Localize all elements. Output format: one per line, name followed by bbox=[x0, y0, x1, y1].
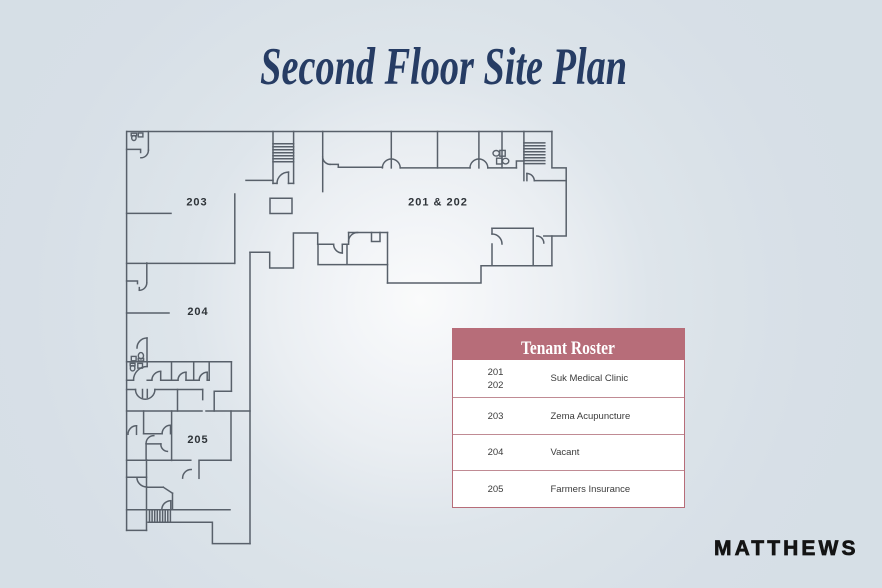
svg-text:205: 205 bbox=[187, 434, 208, 446]
svg-text:201 & 202: 201 & 202 bbox=[408, 197, 468, 209]
svg-text:204: 204 bbox=[187, 306, 208, 318]
svg-text:203: 203 bbox=[186, 197, 207, 209]
